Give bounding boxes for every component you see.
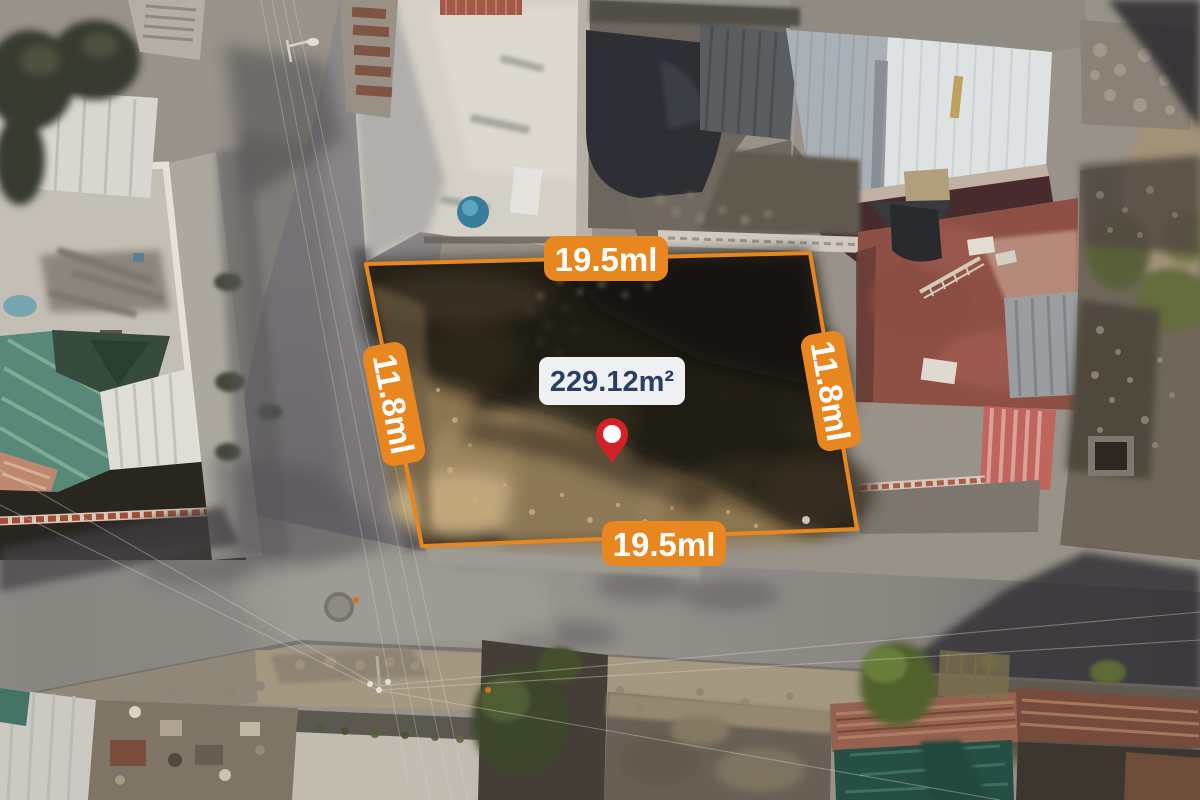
svg-text:229.12m²: 229.12m² <box>550 366 674 398</box>
svg-text:19.5ml: 19.5ml <box>613 526 716 563</box>
svg-text:19.5ml: 19.5ml <box>555 241 658 278</box>
